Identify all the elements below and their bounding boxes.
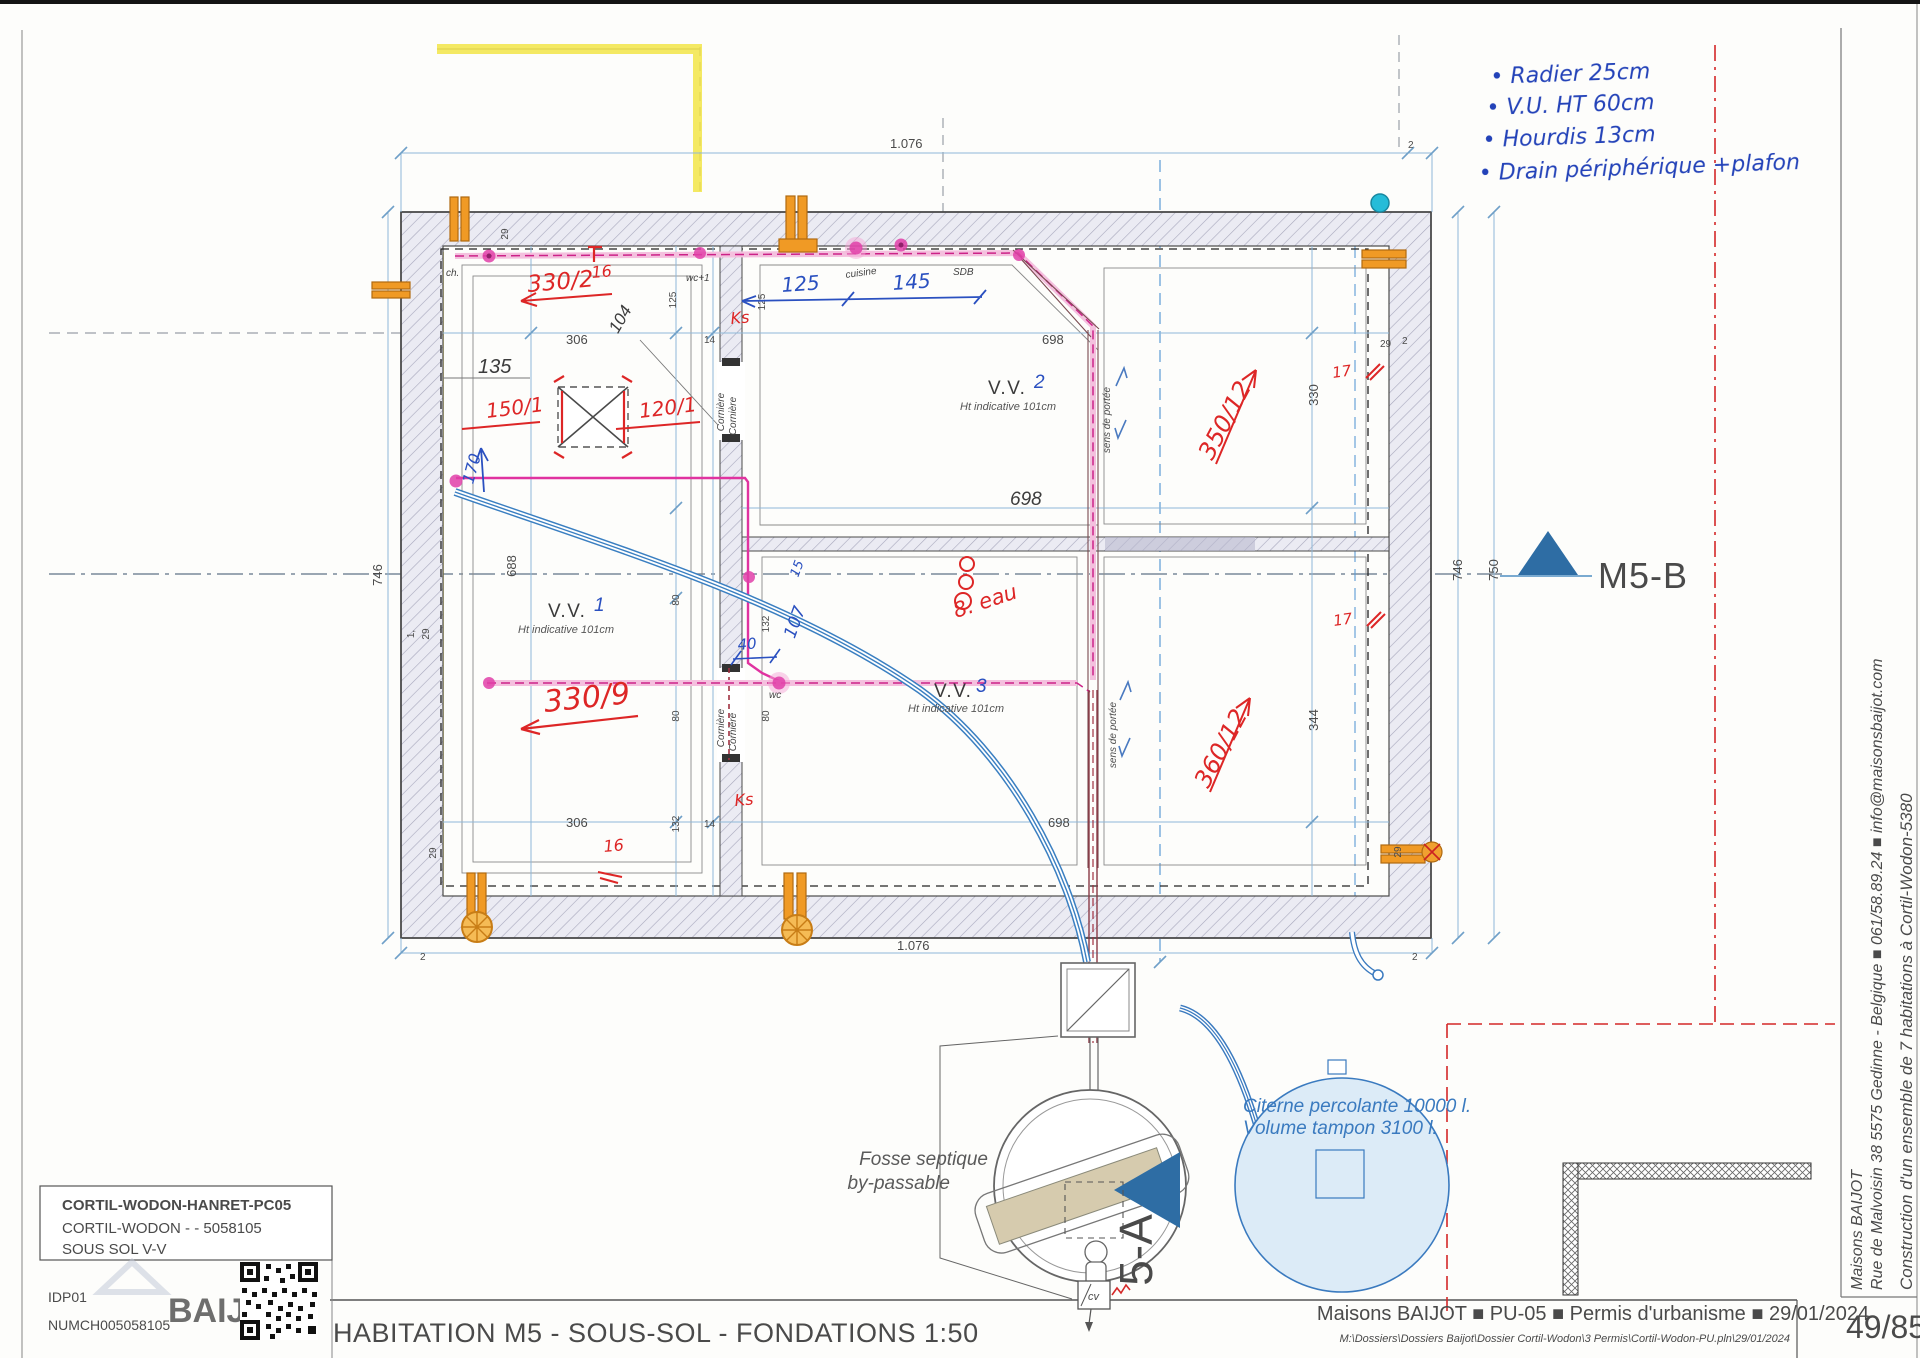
- blue-note-107: 107: [780, 603, 810, 641]
- label-sdb: SDB: [953, 267, 974, 278]
- dim-label: 29: [500, 228, 511, 240]
- room1-sub: Ht indicative 101cm: [518, 624, 614, 636]
- label-sens-1: sens de portée: [1102, 386, 1113, 453]
- cistern-line1: Citerne percolante 10000 l.: [1243, 1096, 1471, 1117]
- dim-label: 132: [671, 815, 682, 832]
- label-sens-2: sens de portée: [1108, 701, 1119, 768]
- column-block: [554, 376, 632, 458]
- wall-outer-edge: [401, 212, 1431, 938]
- handwritten-notes: • Radier 25cm • V.U. HT 60cm • Hourdis 1…: [1475, 54, 1800, 186]
- dim-label: 80: [761, 710, 772, 722]
- footer-meta: Maisons BAIJOT ■ PU-05 ■ Permis d'urbani…: [1317, 1303, 1869, 1325]
- sheet-title: HABITATION M5 - SOUS-SOL - FONDATIONS 1:…: [333, 1318, 979, 1348]
- label-corniere-1a: Cornière: [716, 392, 727, 431]
- blue-note-125: 125: [781, 270, 821, 297]
- sidebar-company: Maisons BAIJOT: [1849, 1169, 1866, 1290]
- blue-note-40: 40: [737, 634, 758, 654]
- dim-label: 698: [1010, 489, 1042, 510]
- cv-arrow-head: [1085, 1322, 1093, 1332]
- label-corniere-2a: Cornière: [716, 708, 727, 747]
- dim-label: 1.076: [890, 136, 923, 151]
- handnote-3: • Hourdis 13cm: [1482, 122, 1656, 153]
- interior-wall-h-dark: [1105, 537, 1255, 551]
- room1-name: V.V.: [548, 601, 586, 622]
- red-note-17b: 17: [1332, 609, 1354, 630]
- title-block: HABITATION M5 - SOUS-SOL - FONDATIONS 1:…: [333, 1303, 1920, 1348]
- watermark-roof: [100, 1262, 164, 1292]
- red-note-120: 120/1: [638, 392, 698, 423]
- cv-arrow-line: [1089, 1309, 1091, 1324]
- dim-label: 29: [1393, 846, 1404, 858]
- blue-note-15: 15: [788, 558, 808, 579]
- clamp-lm-a: [372, 282, 410, 289]
- dim-label: 135: [478, 356, 512, 378]
- blue-pipe-outer: [455, 492, 1087, 962]
- cistern-line2: Volume tampon 3100 l.: [1243, 1118, 1438, 1139]
- dim-label: 29: [421, 628, 432, 640]
- project-line-2: CORTIL-WODON - - 5058105: [62, 1220, 262, 1237]
- sens-arrows: [1115, 368, 1131, 756]
- dim-label: 688: [504, 555, 519, 577]
- label-corniere-2b: Cornière: [728, 712, 739, 751]
- section-label: M5-B: [1598, 555, 1688, 596]
- room3-num: 3: [976, 676, 987, 697]
- red-note-16: 16: [603, 835, 625, 856]
- sidebar-address: Rue de Malvoisin 38 5575 Gedinne - Belgi…: [1869, 658, 1886, 1290]
- dim-label: 29: [428, 847, 439, 859]
- dim-label: 698: [1048, 815, 1070, 830]
- red-line-150: [462, 422, 540, 429]
- handnote-1: • Radier 25cm: [1490, 59, 1651, 90]
- dim-label: 1,: [406, 630, 417, 638]
- dim-label: 330: [1306, 384, 1321, 406]
- clamp-bc-a: [784, 873, 793, 919]
- room2-num: 2: [1033, 372, 1045, 393]
- dim-label: 14: [704, 819, 716, 830]
- red-neq-2: [1367, 612, 1385, 628]
- septic-manhole: [1085, 1241, 1107, 1263]
- clamp-tl-a: [450, 197, 458, 241]
- project-line-3: SOUS SOL V-V: [62, 1241, 166, 1258]
- septic-tag: 5-A: [1110, 1214, 1162, 1286]
- cyan-dot: [1371, 194, 1389, 212]
- clamp-rt-b: [1362, 260, 1406, 268]
- room3-name: V.V.: [934, 681, 972, 702]
- section-marker: M5-B: [1500, 531, 1688, 596]
- corniere-bracket-2b: [722, 754, 740, 762]
- project-line-1: CORTIL-WODON-HANRET-PC05: [62, 1197, 291, 1214]
- red-note-ks2: Ks: [734, 789, 754, 810]
- blue-note-145: 145: [892, 268, 932, 295]
- blue-pipe-center: [455, 492, 1087, 962]
- dim-label: 746: [370, 564, 385, 586]
- corniere-bracket-1a: [722, 358, 740, 366]
- top-edge-line: [0, 0, 1920, 4]
- septic-stem: [1090, 1037, 1098, 1092]
- label-corniere-1b: Cornière: [728, 396, 739, 435]
- sun-bottom-left: [462, 912, 492, 942]
- sidebar-text: Maisons BAIJOT Rue de Malvoisin 38 5575 …: [1849, 658, 1916, 1290]
- qr-code: [240, 1262, 318, 1340]
- red-note-sup16: 16: [591, 261, 613, 282]
- dim-label: 746: [1450, 559, 1465, 581]
- room1-num: 1: [594, 595, 605, 616]
- red-annotations: 330/2 16 150/1 120/1 330/9 350/12 360/12…: [462, 246, 1385, 883]
- dim-label: 104: [605, 302, 636, 336]
- dim-label: 29: [1380, 339, 1392, 350]
- drawing-sheet: M5-B V.V. 1 Ht indicative 101cm V.V. 2 H…: [0, 0, 1920, 1358]
- dim-label: 14: [704, 335, 716, 346]
- highlight-top-v: [693, 44, 702, 192]
- clamp-bl-b: [478, 873, 486, 915]
- dim-label: 344: [1306, 709, 1321, 731]
- dim-label: 80: [671, 594, 682, 606]
- handnote-4: • Drain périphérique +plafon: [1478, 150, 1800, 186]
- room2-outline: [760, 265, 1098, 525]
- septic-label-2: by-passable: [848, 1173, 950, 1194]
- blue-pipe-gap: [455, 492, 1087, 962]
- clamp-bc-b: [797, 873, 806, 919]
- red-mark-16: [598, 872, 622, 883]
- dim-label: 132: [761, 615, 772, 632]
- plan-walls: [401, 212, 1431, 938]
- sun-bottom-center: [782, 915, 812, 945]
- cistern: [1235, 1060, 1449, 1292]
- section-triangle: [1518, 531, 1578, 575]
- interior-wall-h: [742, 537, 1389, 551]
- sidebar-project: Construction d'un ensemble de 7 habitati…: [1897, 793, 1916, 1290]
- label-ch: ch.: [446, 268, 459, 279]
- clamp-tc-grid: [779, 239, 817, 252]
- label-wc: wc: [769, 690, 781, 701]
- outer-wall-ring: [401, 212, 1431, 938]
- dim-label: 125: [757, 293, 768, 310]
- highlight-top-h: [437, 44, 697, 54]
- corniere-bracket-2a: [722, 664, 740, 672]
- clamp-rt-a: [1362, 250, 1406, 258]
- dim-label: 698: [1042, 332, 1064, 347]
- detail-band-v: [1563, 1163, 1578, 1295]
- red-note-330-2: 330/2: [526, 266, 594, 298]
- detail-corner: [1563, 1163, 1811, 1295]
- dim-label: 2: [1408, 140, 1414, 151]
- dim-label: 1.076: [897, 938, 930, 953]
- room3-sub: Ht indicative 101cm: [908, 703, 1004, 715]
- red-arrow-330-9: [521, 716, 638, 734]
- room2-sub: Ht indicative 101cm: [960, 401, 1056, 413]
- project-line-4: IDP01: [48, 1289, 87, 1305]
- dim-label: 306: [566, 815, 588, 830]
- project-line-5: NUMCH005058105: [48, 1317, 170, 1333]
- red-note-360: 360/12: [1189, 704, 1253, 792]
- clamp-tl-b: [461, 197, 469, 241]
- elbow-pipe-end: [1373, 970, 1383, 980]
- room-outlines: [443, 265, 1366, 873]
- label-cuisine: cuisine: [845, 266, 878, 281]
- page-number: 49/85: [1846, 1309, 1920, 1345]
- dim-label: 125: [668, 291, 679, 308]
- dim-label: 2: [420, 952, 426, 963]
- dim-label: 2: [1402, 336, 1408, 347]
- label-wc1: wc+1: [686, 273, 710, 284]
- footer-path: M:\Dossiers\Dossiers Baijot\Dossier Cort…: [1339, 1333, 1790, 1345]
- plan-canvas: M5-B V.V. 1 Ht indicative 101cm V.V. 2 H…: [0, 0, 1920, 1358]
- watermark-text: BAIJ: [168, 1292, 245, 1330]
- handnote-2: • V.U. HT 60cm: [1486, 90, 1655, 121]
- cv-label: cv: [1088, 1291, 1101, 1303]
- red-note-150: 150/1: [485, 392, 545, 423]
- detail-band-h: [1563, 1163, 1811, 1179]
- red-note-ks1: Ks: [730, 307, 750, 328]
- septic-label-1: Fosse septique: [859, 1149, 988, 1170]
- dot-center-2: [899, 243, 904, 248]
- clamp-lm-b: [372, 291, 410, 298]
- blue-dim-line: [742, 290, 986, 307]
- project-box: CORTIL-WODON-HANRET-PC05 CORTIL-WODON - …: [40, 1186, 332, 1340]
- dot-center-1: [487, 254, 492, 259]
- dim-label: 2: [1412, 952, 1418, 963]
- clamp-bl-a: [467, 873, 475, 915]
- dim-label: 750: [1486, 559, 1501, 581]
- red-neq-1: [1366, 364, 1384, 380]
- dim-label: 80: [671, 710, 682, 722]
- dim-label: 306: [566, 332, 588, 347]
- room2-name: V.V.: [988, 378, 1026, 399]
- cistern-neck: [1328, 1060, 1346, 1074]
- red-note-17a: 17: [1331, 361, 1353, 382]
